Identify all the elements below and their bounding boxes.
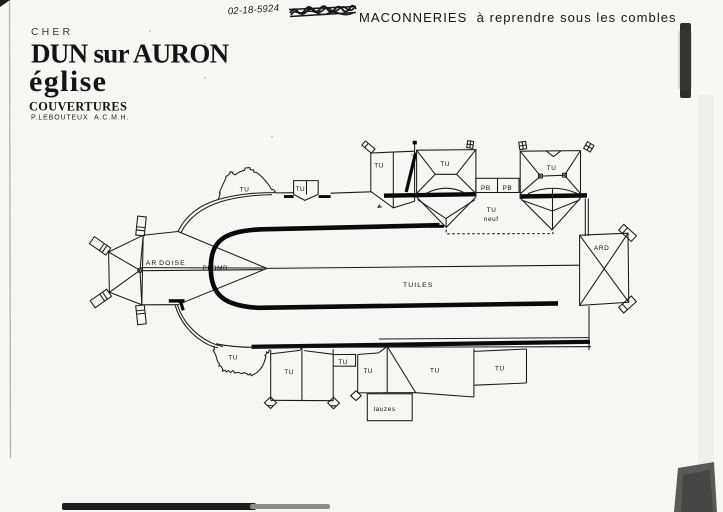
svg-text:TU: TU (495, 366, 505, 373)
svg-text:TU: TU (374, 162, 384, 169)
svg-text:TU: TU (363, 368, 373, 375)
svg-text:MACONNERIES à reprendre sous: MACONNERIES à reprendre sous les combles (359, 10, 677, 25)
svg-text:TU: TU (296, 186, 306, 193)
svg-text:lauzes: lauzes (374, 406, 396, 413)
svg-text:église: église (29, 65, 107, 98)
svg-text:TU: TU (338, 359, 348, 366)
svg-text:TU: TU (228, 354, 238, 361)
svg-text:COUVERTURES: COUVERTURES (29, 100, 127, 114)
svg-text:TUILES: TUILES (403, 282, 433, 289)
svg-text:TU: TU (487, 207, 497, 214)
svg-text:DUN sur AURON: DUN sur AURON (31, 39, 230, 69)
svg-text:TU: TU (440, 161, 450, 168)
svg-text:ARD: ARD (594, 245, 609, 252)
svg-text:TU: TU (284, 369, 294, 376)
svg-text:PB: PB (503, 185, 513, 192)
svg-text:CHER: CHER (31, 26, 73, 38)
svg-text:TU: TU (430, 367, 440, 374)
svg-text:TU: TU (547, 165, 557, 172)
svg-text:TU: TU (240, 186, 250, 193)
svg-text:AR DOISE: AR DOISE (146, 260, 186, 267)
svg-text:PB: PB (481, 185, 491, 192)
svg-text:neuf: neuf (484, 216, 499, 223)
svg-text:PLOMB: PLOMB (203, 265, 228, 272)
svg-text:P.LEBOUTEUX A.C.M.H.: P.LEBOUTEUX A.C.M.H. (31, 115, 129, 122)
